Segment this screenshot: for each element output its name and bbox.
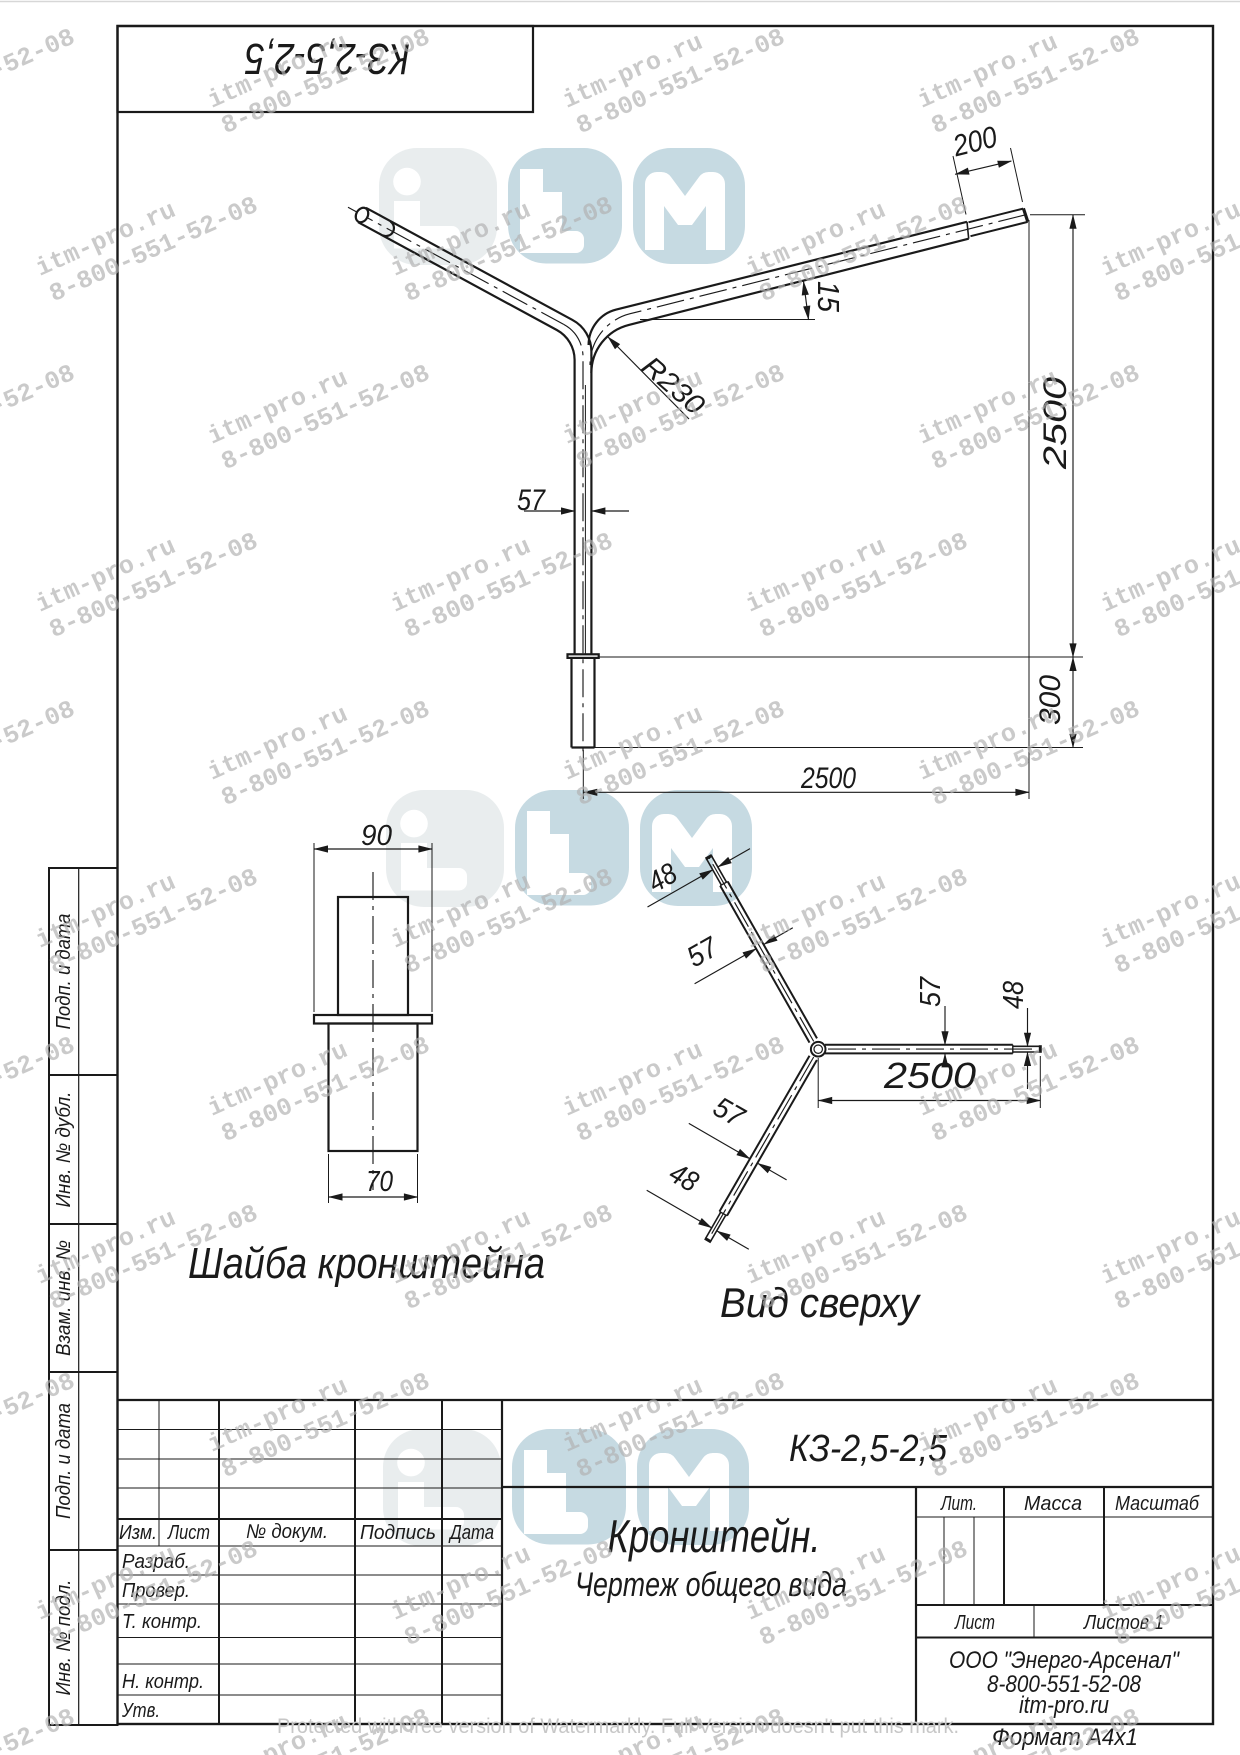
svg-text:Подпись: Подпись — [360, 1522, 436, 1544]
svg-text:90: 90 — [361, 820, 392, 852]
svg-text:8-800-551-52-08: 8-800-551-52-08 — [0, 1703, 79, 1755]
svg-text:Масштаб: Масштаб — [1115, 1493, 1200, 1515]
svg-text:Protected with free version of: Protected with free version of Watermark… — [277, 1715, 959, 1738]
svg-text:Утв.: Утв. — [121, 1700, 160, 1722]
svg-text:Подп. и дата: Подп. и дата — [53, 1403, 75, 1519]
svg-text:Лит.: Лит. — [939, 1493, 977, 1515]
svg-text:Инв. № дубл.: Инв. № дубл. — [53, 1092, 75, 1208]
svg-text:8-800-551-52-08: 8-800-551-52-08 — [0, 359, 79, 477]
svg-text:8-800-551-52-08: 8-800-551-52-08 — [0, 695, 79, 813]
svg-text:57: 57 — [682, 931, 725, 975]
svg-text:№ докум.: № докум. — [246, 1521, 328, 1543]
svg-text:57: 57 — [708, 1091, 751, 1135]
svg-text:8-800-551-52-08: 8-800-551-52-08 — [0, 23, 79, 141]
svg-text:Лист: Лист — [166, 1522, 210, 1544]
svg-text:Кронштейн.: Кронштейн. — [608, 1510, 821, 1562]
svg-text:57: 57 — [915, 975, 947, 1007]
svg-text:48: 48 — [664, 1157, 704, 1199]
svg-text:57: 57 — [517, 484, 546, 517]
svg-text:Лист: Лист — [953, 1612, 995, 1634]
svg-text:Дата: Дата — [448, 1522, 494, 1544]
svg-text:48: 48 — [998, 981, 1030, 1009]
svg-text:2500: 2500 — [800, 762, 856, 795]
svg-text:Н. контр.: Н. контр. — [122, 1671, 204, 1693]
svg-text:ООО "Энерго-Арсенал": ООО "Энерго-Арсенал" — [949, 1647, 1180, 1674]
svg-text:70: 70 — [366, 1166, 393, 1198]
svg-text:Изм.: Изм. — [119, 1522, 157, 1544]
svg-text:Масса: Масса — [1024, 1493, 1082, 1515]
